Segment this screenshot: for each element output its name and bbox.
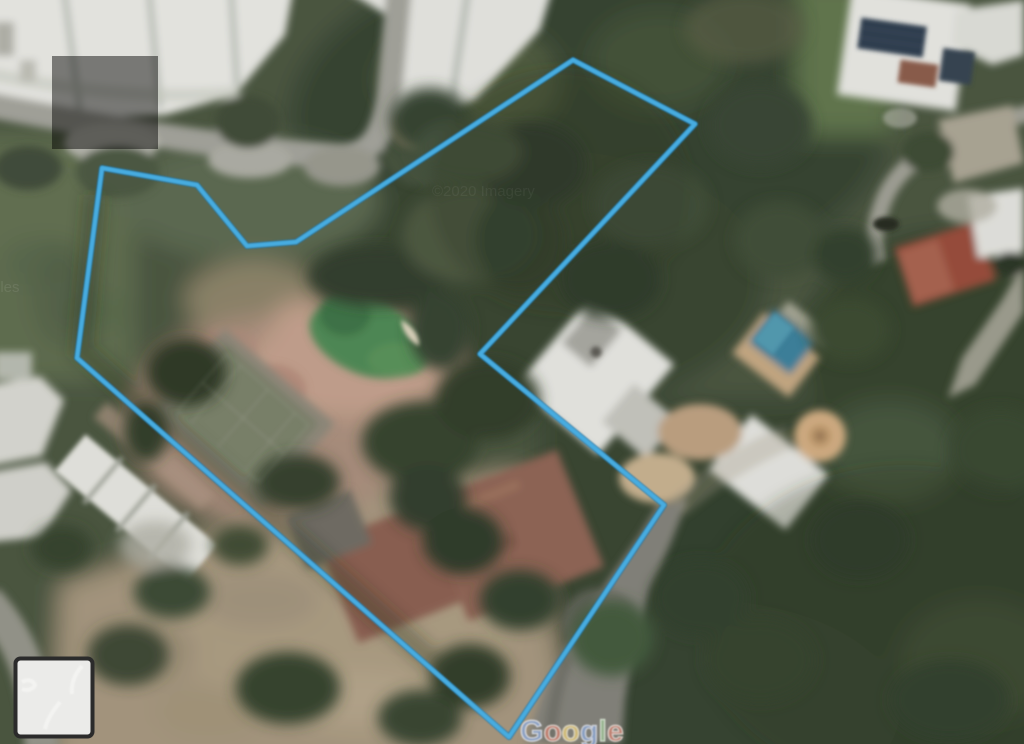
svg-text:e: e bbox=[607, 715, 624, 744]
svg-text:g: g bbox=[580, 715, 598, 744]
svg-text:©2020 Imagery: ©2020 Imagery bbox=[432, 183, 535, 200]
svg-text:gles: gles bbox=[0, 279, 20, 296]
svg-text:o: o bbox=[544, 715, 562, 744]
svg-text:l: l bbox=[599, 715, 607, 744]
svg-text:o: o bbox=[562, 715, 580, 744]
svg-text:G: G bbox=[520, 715, 543, 744]
